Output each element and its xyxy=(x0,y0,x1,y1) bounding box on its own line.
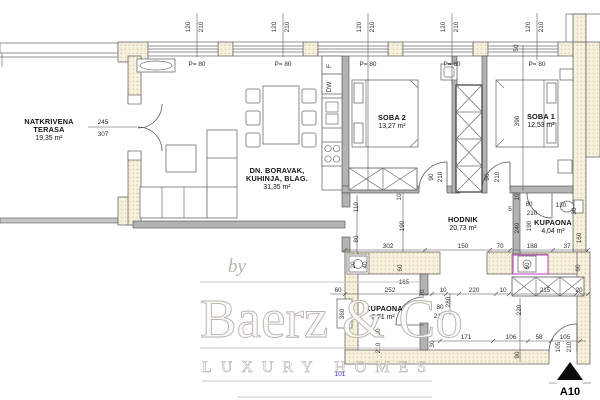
watermark-brand: Baerz & Co xyxy=(200,288,463,349)
dim-label: 30 xyxy=(571,207,578,215)
dim-label: 120 xyxy=(356,21,363,32)
nightstand xyxy=(560,69,573,80)
dim-label: 210 xyxy=(284,21,291,32)
room-area: 20,73 m² xyxy=(449,225,477,232)
dim-label: 10 xyxy=(396,193,403,201)
dim-label: 20 xyxy=(575,287,583,294)
dim-label: 110 xyxy=(353,201,360,212)
dim-label: 188 xyxy=(527,243,538,250)
dim-label: 105 xyxy=(560,334,571,341)
room-area: 12,53 m² xyxy=(527,122,555,129)
dim-label: 70 xyxy=(496,243,504,250)
room-name: KUPAONA xyxy=(534,218,572,227)
window xyxy=(233,42,303,56)
dim-label: 120 xyxy=(185,21,192,32)
wall-adjacent xyxy=(586,42,600,157)
dim-label: P= 80 xyxy=(189,61,206,68)
sink xyxy=(322,98,342,128)
dim-label: 60 xyxy=(524,262,531,270)
dim-label: 210 xyxy=(437,171,444,182)
door-jamb xyxy=(128,95,141,104)
window xyxy=(403,42,473,56)
wall-pier xyxy=(388,42,403,56)
floor-plan: 120210120210120210120210120210P= 80P= 80… xyxy=(0,0,600,400)
watermark-tagline: LUXURY HOMES xyxy=(202,359,435,376)
dim-label: 302 xyxy=(383,243,394,250)
stove xyxy=(322,142,342,166)
dim-label: 190 xyxy=(399,220,406,231)
dim-label: 150 xyxy=(458,243,469,250)
dim-label: 120 xyxy=(271,21,278,32)
room-area: 31,35 m² xyxy=(263,184,291,191)
windows xyxy=(148,42,558,56)
room-label-terasa: NATKRIVENA TERASA 19,35 m² xyxy=(24,117,74,142)
dim-label: P= 80 xyxy=(444,61,461,68)
coffee-table xyxy=(166,145,196,172)
room-name: SOBA 2 xyxy=(378,113,406,122)
plan-code: A10 xyxy=(560,386,580,398)
dim-label: 210 xyxy=(369,21,376,32)
wall-shaft-right xyxy=(482,56,487,193)
shaft xyxy=(456,85,482,192)
room-name: TERASA xyxy=(33,125,65,134)
dim-label: 80 xyxy=(353,235,360,243)
entrance-marker: A10 xyxy=(549,362,591,398)
dim-label: 90 xyxy=(514,351,521,359)
dim-label: 40 xyxy=(362,261,369,269)
room-area: 4,04 m² xyxy=(541,228,565,235)
dim-label: 210 xyxy=(453,21,460,32)
dim-label: 120 xyxy=(440,21,447,32)
room-label-living: DN. BORAVAK, KUHINJA, BLAG. 31,35 m² xyxy=(246,166,308,191)
wardrobe-soba2 xyxy=(349,168,417,190)
dim-label: P= 80 xyxy=(529,61,546,68)
room-label-hodnik: HODNIK 20,73 m² xyxy=(448,215,479,232)
door-jamb xyxy=(128,151,141,160)
sofa xyxy=(140,130,237,218)
window xyxy=(148,42,218,56)
dim-label: 80 xyxy=(525,201,533,208)
room-label-kupaona: KUPAONA 4,04 m² xyxy=(534,218,572,235)
terrace-door-leaf2 xyxy=(138,127,162,151)
room-name: HODNIK xyxy=(448,215,479,224)
terrace-railing xyxy=(0,218,118,223)
dim-label: 50 xyxy=(513,44,520,52)
dim-label: 130 xyxy=(556,202,567,209)
dim-label: 245 xyxy=(98,119,109,126)
dim-label: 58 xyxy=(535,334,543,341)
dim-label: P= 80 xyxy=(360,61,377,68)
wall-right xyxy=(573,42,586,252)
dim-label: 220 xyxy=(469,287,480,294)
room-area: 13,27 m² xyxy=(378,123,406,130)
dim-label: 10 xyxy=(514,193,521,201)
dim-label: 90 xyxy=(428,173,435,181)
wall-soba1-bottom xyxy=(510,186,573,193)
room-name: SOBA 1 xyxy=(527,112,555,121)
dim-label: 210 xyxy=(494,171,501,182)
dim-label: 220 xyxy=(516,304,523,315)
room-name: KUHINJA, BLAG. xyxy=(246,174,308,183)
wall-terrace-lower xyxy=(128,152,141,225)
dim-label: 210 xyxy=(566,341,573,352)
dim-label: 307 xyxy=(98,131,109,138)
dim-label: 210 xyxy=(527,210,538,217)
room-area: 19,35 m² xyxy=(35,135,63,142)
dim-label: 90 xyxy=(484,173,491,181)
wall-top-right-stub xyxy=(573,14,586,42)
dim-label: 120 xyxy=(525,21,532,32)
terrace-roof-edge xyxy=(0,43,118,53)
dim-label: P= 80 xyxy=(275,61,292,68)
wall-hodnik-left1 xyxy=(342,193,350,207)
north-arrow-icon xyxy=(557,362,583,380)
dim-label: 215 xyxy=(540,287,551,294)
dim-label: 20 xyxy=(350,261,357,269)
dim-label: 5 xyxy=(508,206,512,213)
kitchen-counter xyxy=(322,56,342,190)
dim-label: 160 xyxy=(576,232,583,243)
dim-label: 105 xyxy=(555,341,562,352)
dim-label: 390 xyxy=(514,115,521,126)
wall-pier xyxy=(303,42,318,56)
bench xyxy=(558,160,572,173)
wall-pier xyxy=(473,42,488,56)
dim-label: F xyxy=(326,64,333,68)
wall-pier xyxy=(218,42,233,56)
wall-pier xyxy=(558,42,573,56)
dining-table xyxy=(263,86,299,144)
blue-note: 101 xyxy=(335,371,346,378)
dim-label: DW xyxy=(326,81,333,93)
dim-label: 60 xyxy=(575,264,582,272)
room-label-soba1: SOBA 1 12,53 m² xyxy=(527,112,555,129)
terrace-door-leaf1 xyxy=(138,104,162,128)
dim-label: 210 xyxy=(538,21,545,32)
watermark-by: by xyxy=(228,256,247,277)
wall-living-bottom xyxy=(133,221,345,228)
dim-label: 106 xyxy=(506,334,517,341)
dim-label: 60 xyxy=(397,264,404,272)
dim-label: 240 xyxy=(514,222,521,233)
dim-label: 210 xyxy=(198,21,205,32)
dim-label: 10 xyxy=(499,287,507,294)
radiator xyxy=(137,59,175,72)
dim-label: 190 xyxy=(526,220,533,231)
room-label-soba2: SOBA 2 13,27 m² xyxy=(378,113,406,130)
window xyxy=(318,42,388,56)
wall-kitchen xyxy=(342,56,349,193)
dim-label: 37 xyxy=(563,243,571,250)
